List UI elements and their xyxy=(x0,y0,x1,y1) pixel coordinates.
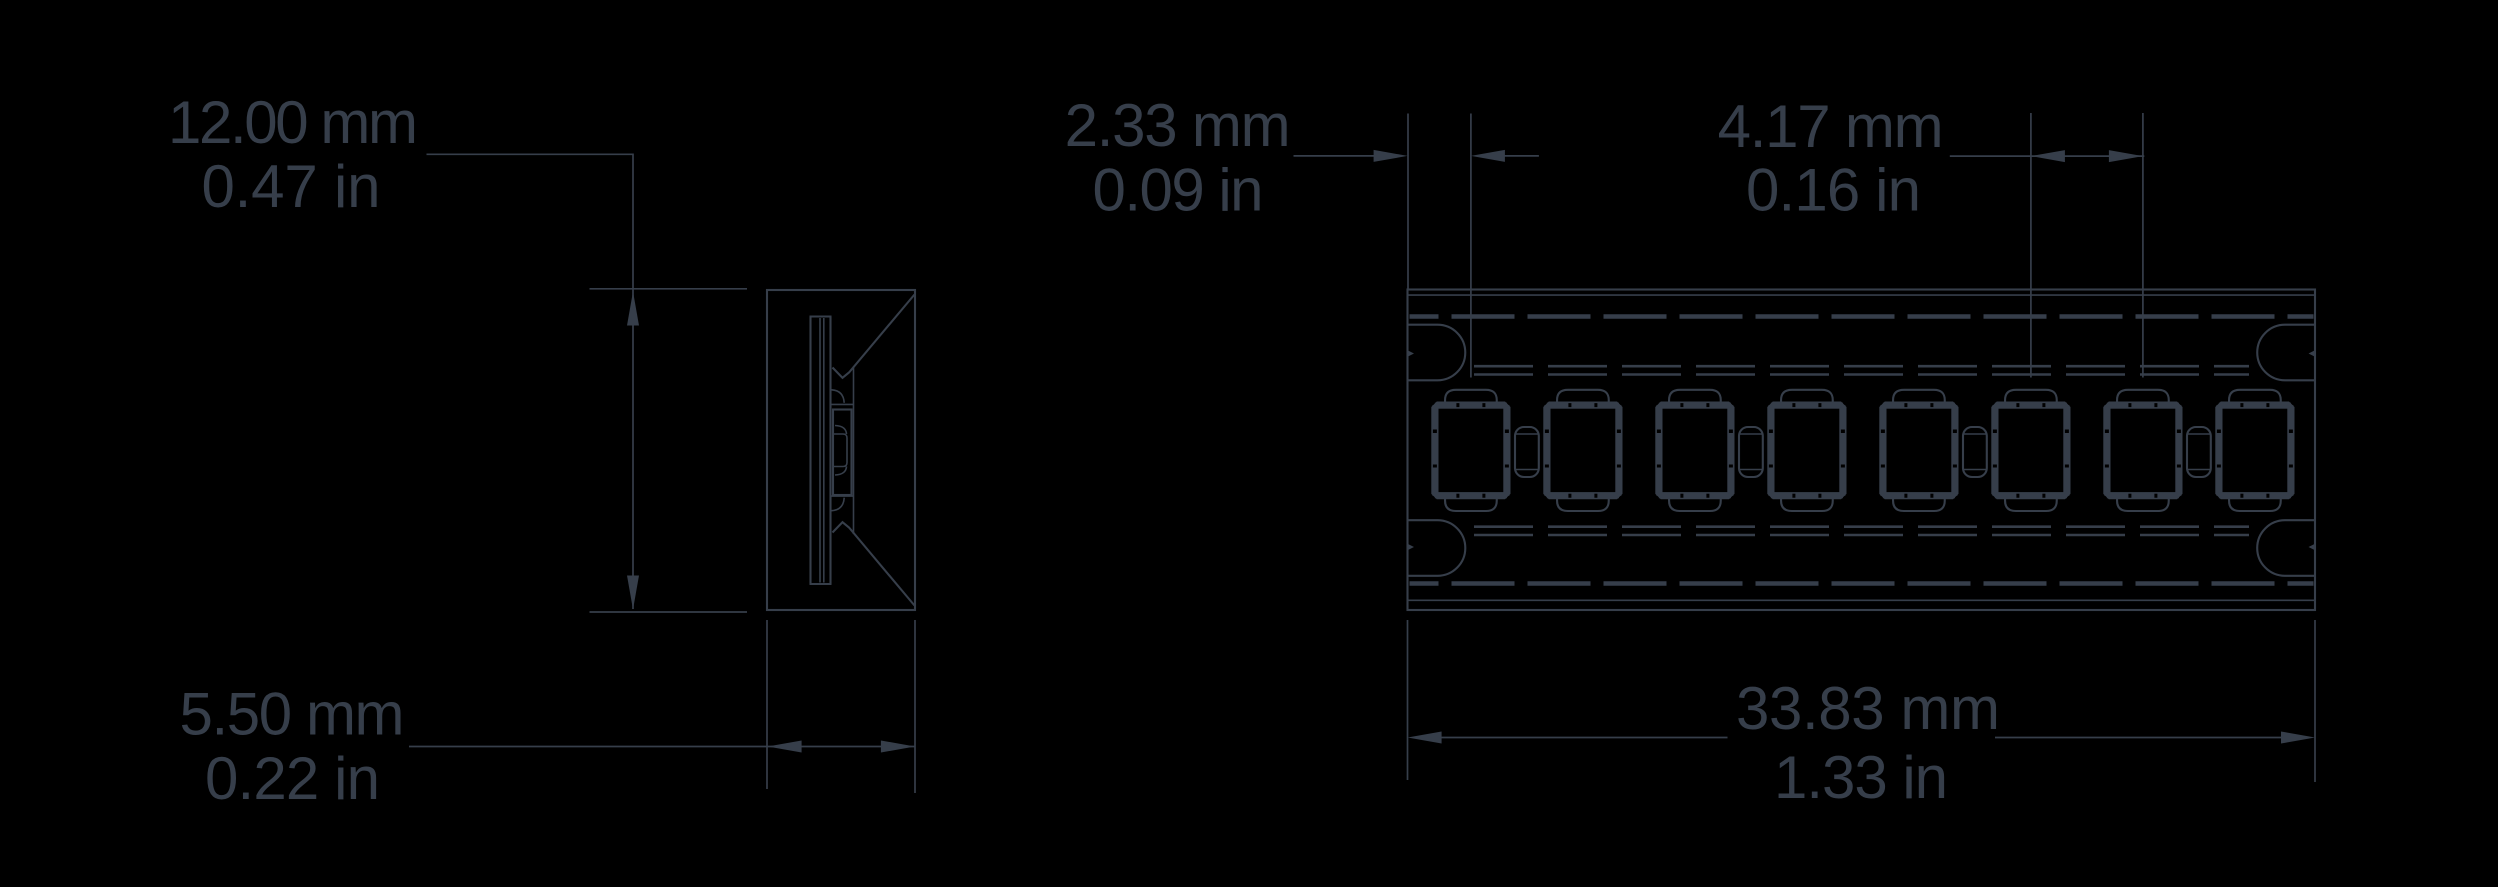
svg-text:4.17 mm: 4.17 mm xyxy=(1718,93,1944,160)
svg-text:0.16 in: 0.16 in xyxy=(1746,156,1921,223)
svg-text:0.47 in: 0.47 in xyxy=(202,153,381,220)
svg-text:12.00 mm: 12.00 mm xyxy=(168,89,418,156)
svg-text:2.33 mm: 2.33 mm xyxy=(1065,92,1291,159)
svg-text:5.50 mm: 5.50 mm xyxy=(180,680,405,747)
svg-text:33.83 mm: 33.83 mm xyxy=(1736,675,2000,742)
svg-text:0.09 in: 0.09 in xyxy=(1093,156,1264,223)
svg-text:0.22 in: 0.22 in xyxy=(205,745,380,812)
svg-text:1.33 in: 1.33 in xyxy=(1774,744,1948,811)
